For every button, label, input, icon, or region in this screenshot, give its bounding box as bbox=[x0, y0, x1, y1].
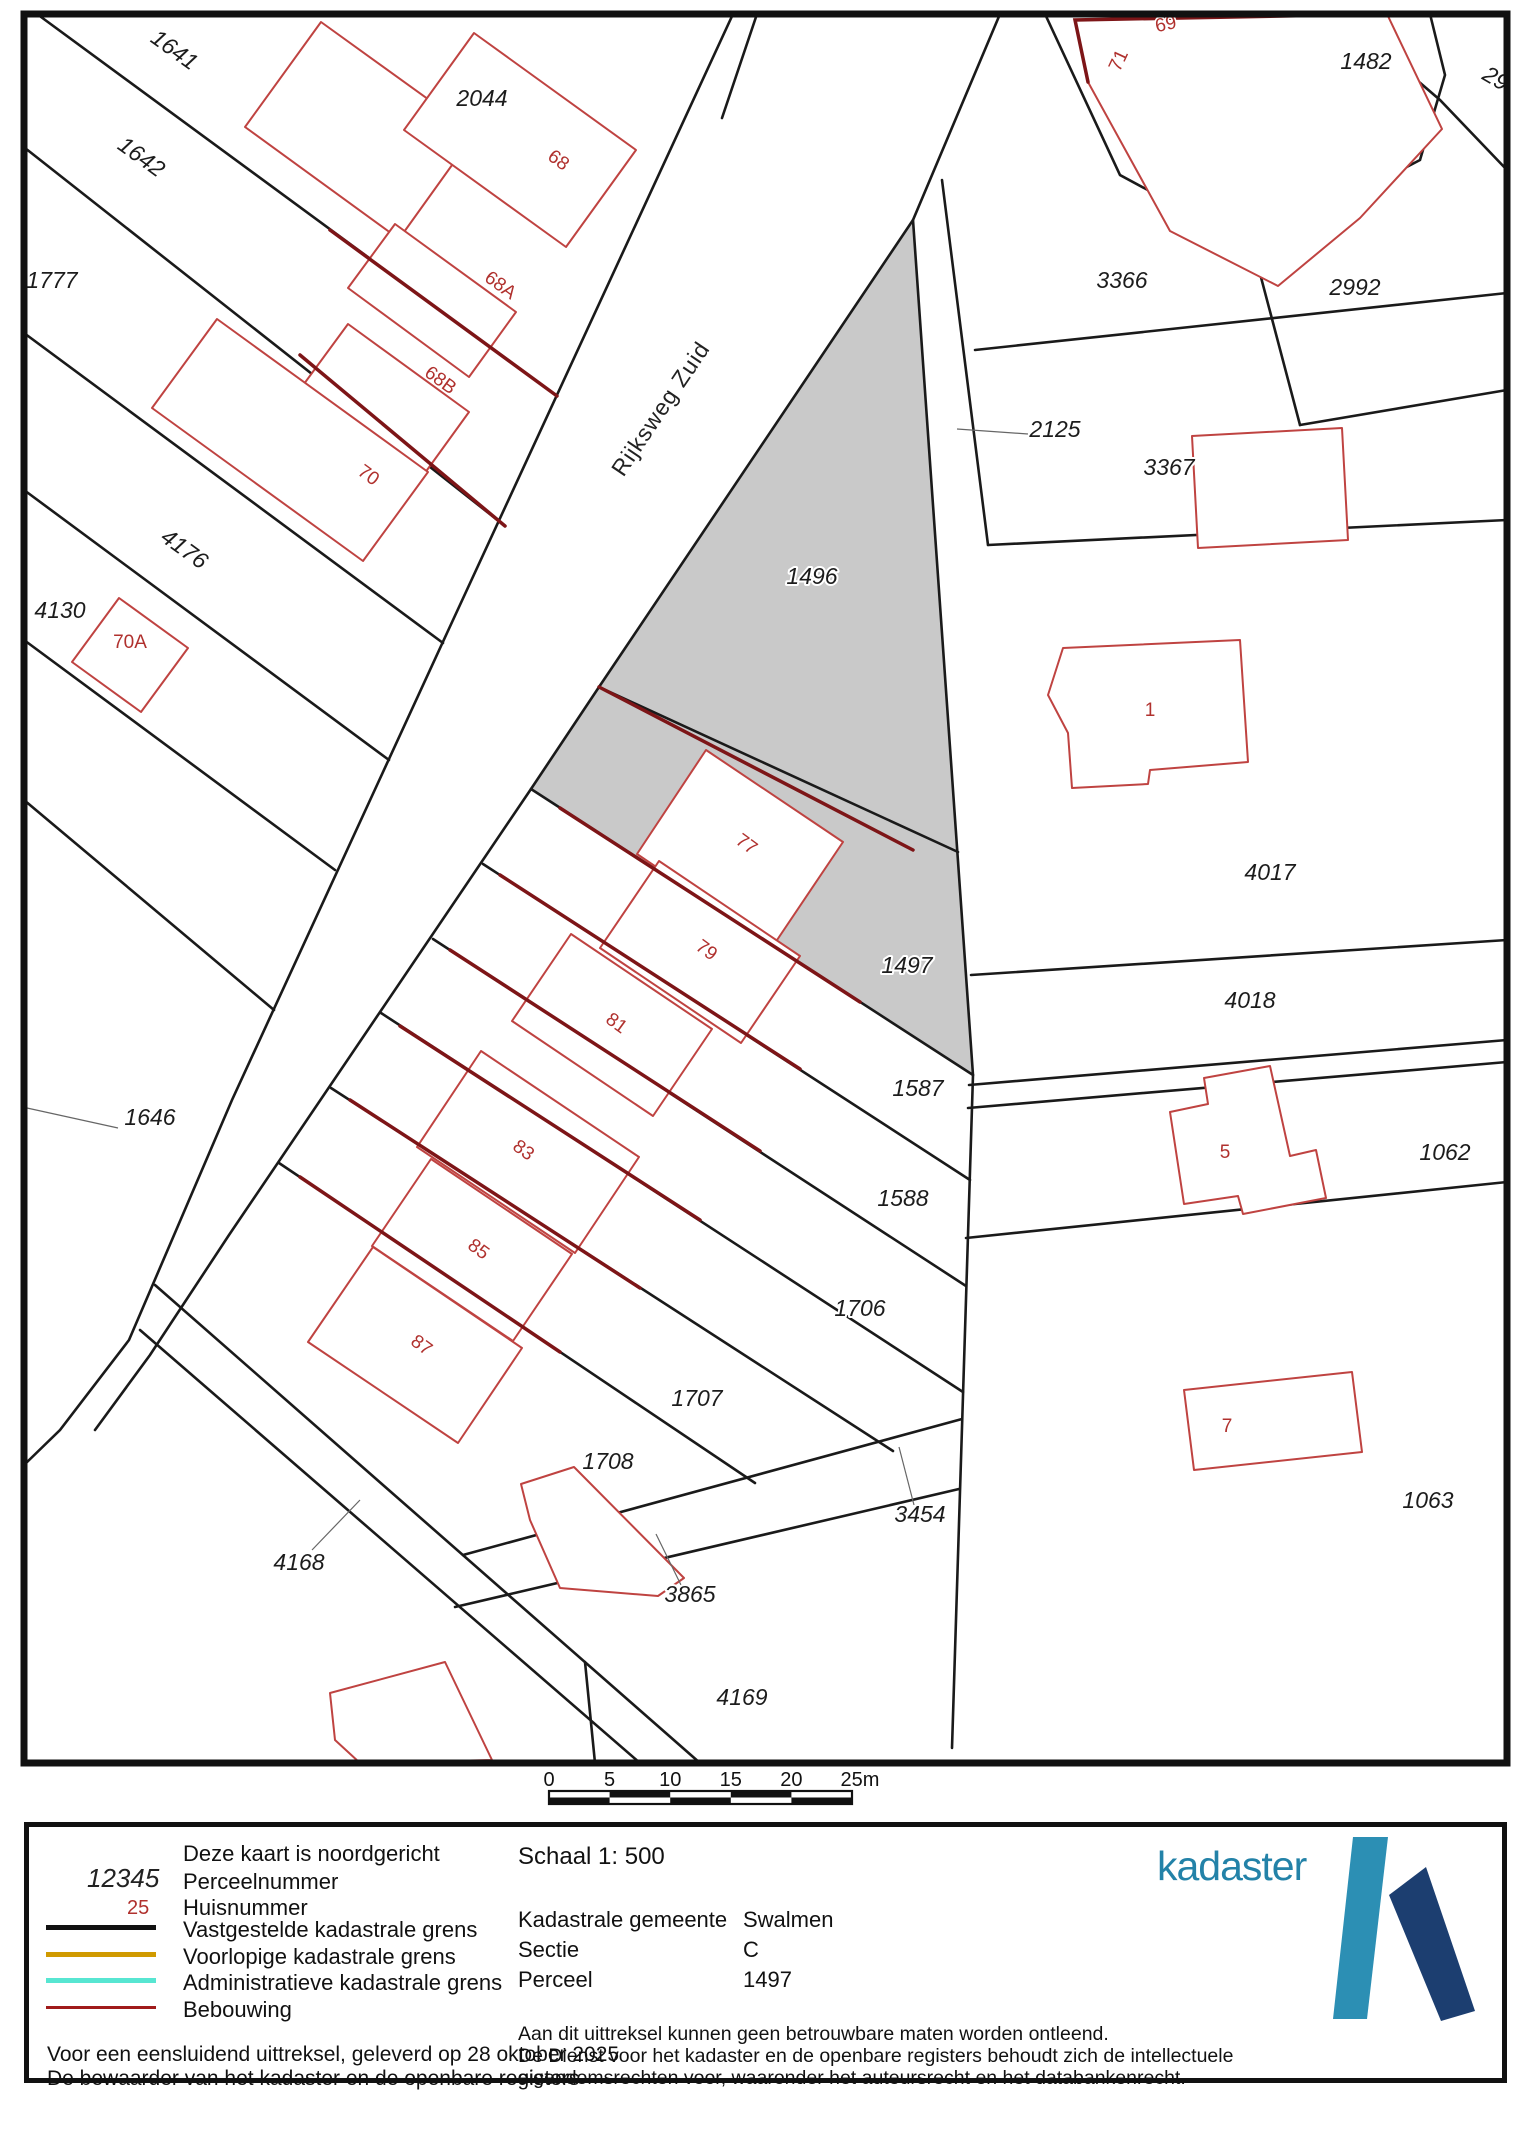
legend-box: Deze kaart is noordgericht 12345 Perceel… bbox=[24, 1822, 1507, 2083]
line-sample-bebouwing bbox=[46, 2006, 156, 2009]
disclaimer-line1: Aan dit uittreksel kunnen geen betrouwba… bbox=[518, 2023, 1109, 2045]
parcel-label-1482: 1482 bbox=[1340, 48, 1391, 74]
line-sample-vastgesteld bbox=[46, 1925, 156, 1930]
line-sample-voorlopig bbox=[46, 1952, 156, 1957]
building-2044-b bbox=[404, 33, 636, 247]
field-perceel-label: Perceel bbox=[518, 1967, 743, 1993]
house-number-sample: 25 bbox=[127, 1897, 149, 1920]
parcel-label-1588: 1588 bbox=[877, 1185, 928, 1211]
parcel-label-3454: 3454 bbox=[894, 1501, 945, 1527]
road-name-label: Rijksweg Zuid bbox=[606, 337, 715, 481]
field-sectie-label: Sectie bbox=[518, 1937, 743, 1963]
parcel-label-2044: 2044 bbox=[455, 85, 507, 111]
parcel-label-4017: 4017 bbox=[1244, 859, 1296, 885]
parcel-number-label: Perceelnummer bbox=[183, 1869, 338, 1895]
north-note: Deze kaart is noordgericht bbox=[183, 1841, 440, 1867]
parcel-label-3366: 3366 bbox=[1096, 267, 1147, 293]
field-sectie-value: C bbox=[743, 1937, 759, 1962]
scale-tick-15: 15 bbox=[720, 1769, 742, 1791]
scale-tick-25m: 25m bbox=[841, 1769, 880, 1791]
disclaimer-line2: De Dienst voor het kadaster en de openba… bbox=[518, 2045, 1233, 2067]
parcel-label-4018: 4018 bbox=[1224, 987, 1275, 1013]
parcel-label-1497: 1497 bbox=[881, 952, 933, 978]
scale-tick-10: 10 bbox=[659, 1769, 681, 1791]
parcel-label-3865: 3865 bbox=[664, 1581, 715, 1607]
building-7 bbox=[1184, 1372, 1362, 1470]
scale-tick-5: 5 bbox=[604, 1769, 615, 1791]
field-gemeente-value: Swalmen bbox=[743, 1907, 833, 1932]
parcel-label-1062: 1062 bbox=[1419, 1139, 1470, 1165]
parcel-label-3367: 3367 bbox=[1143, 454, 1195, 480]
parcel-label-1587: 1587 bbox=[892, 1075, 944, 1101]
parcel-label-1496: 1496 bbox=[786, 563, 837, 589]
field-gemeente-label: Kadastrale gemeente bbox=[518, 1907, 743, 1933]
parcel-label-2125: 2125 bbox=[1028, 416, 1080, 442]
building-bottom-edge bbox=[330, 1662, 492, 1763]
house-number-5: 5 bbox=[1220, 1142, 1231, 1163]
legend-item-vastgesteld: Vastgestelde kadastrale grens bbox=[183, 1917, 477, 1943]
buildings bbox=[72, 14, 1442, 1763]
kadaster-map-extract: 1641164217772044417641301646149621253366… bbox=[0, 0, 1531, 2130]
scale-tick-0: 0 bbox=[543, 1769, 554, 1791]
cadastral-map: 1641164217772044417641301646149621253366… bbox=[0, 0, 1531, 1810]
house-number-7: 7 bbox=[1222, 1416, 1233, 1437]
parcel-number-sample: 12345 bbox=[87, 1863, 159, 1894]
parcel-label-1642: 1642 bbox=[113, 131, 170, 182]
parcel-label-4176: 4176 bbox=[156, 523, 213, 574]
line-sample-administratief bbox=[46, 1978, 156, 1983]
parcel-label-2992: 2992 bbox=[1328, 274, 1380, 300]
parcel-label-4169: 4169 bbox=[716, 1684, 767, 1710]
parcel-label-1708: 1708 bbox=[582, 1448, 633, 1474]
parcel-label-4130: 4130 bbox=[34, 597, 85, 623]
kadaster-wordmark: kadaster bbox=[1157, 1843, 1306, 1890]
field-perceel: Perceel1497 bbox=[518, 1967, 792, 1993]
disclaimer-line3: eigendomsrechten voor, waaronder het aut… bbox=[518, 2067, 1186, 2089]
field-perceel-value: 1497 bbox=[743, 1967, 792, 1992]
parcel-label-1063: 1063 bbox=[1402, 1487, 1453, 1513]
building-70a bbox=[72, 598, 188, 712]
house-number-70A: 70A bbox=[113, 632, 147, 653]
parcel-label-1641: 1641 bbox=[146, 24, 203, 75]
issued-note-line2: De bewaarder van het kadaster en de open… bbox=[47, 2067, 579, 2091]
scale-text: Schaal 1: 500 bbox=[518, 1843, 665, 1871]
parcel-label-1707: 1707 bbox=[671, 1385, 723, 1411]
scale-bar bbox=[549, 1791, 852, 1804]
parcel-label-1646: 1646 bbox=[124, 1104, 175, 1130]
building-3865 bbox=[521, 1467, 684, 1596]
house-number-1: 1 bbox=[1145, 700, 1156, 721]
legend-item-bebouwing: Bebouwing bbox=[183, 1997, 292, 2023]
field-gemeente: Kadastrale gemeenteSwalmen bbox=[518, 1907, 833, 1933]
legend-item-administratief: Administratieve kadastrale grens bbox=[183, 1970, 502, 1996]
parcel-label-1706: 1706 bbox=[834, 1295, 885, 1321]
parcel-label-4168: 4168 bbox=[273, 1549, 324, 1575]
scale-tick-20: 20 bbox=[780, 1769, 802, 1791]
field-sectie: SectieC bbox=[518, 1937, 759, 1963]
parcel-label-1777: 1777 bbox=[26, 267, 78, 293]
legend-item-voorlopig: Voorlopige kadastrale grens bbox=[183, 1944, 456, 1970]
kadaster-logo-icon bbox=[1329, 1831, 1479, 2031]
building-3367 bbox=[1192, 428, 1348, 548]
